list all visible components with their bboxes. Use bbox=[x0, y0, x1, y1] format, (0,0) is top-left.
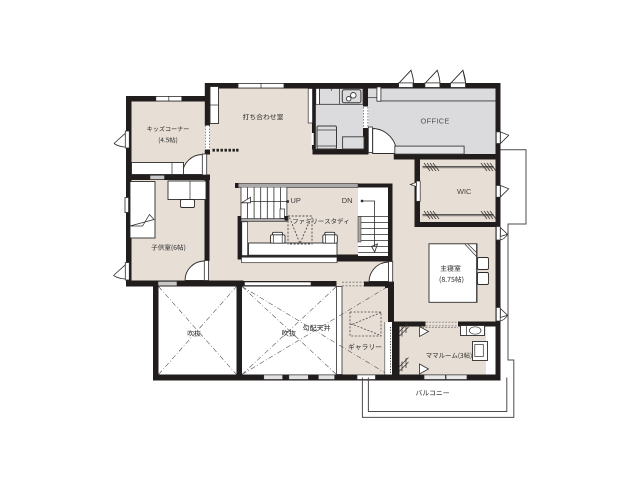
svg-text:DN: DN bbox=[342, 196, 353, 205]
svg-text:OFFICE: OFFICE bbox=[421, 116, 450, 125]
svg-text:UP: UP bbox=[291, 196, 301, 205]
svg-text:WIC: WIC bbox=[457, 187, 472, 196]
